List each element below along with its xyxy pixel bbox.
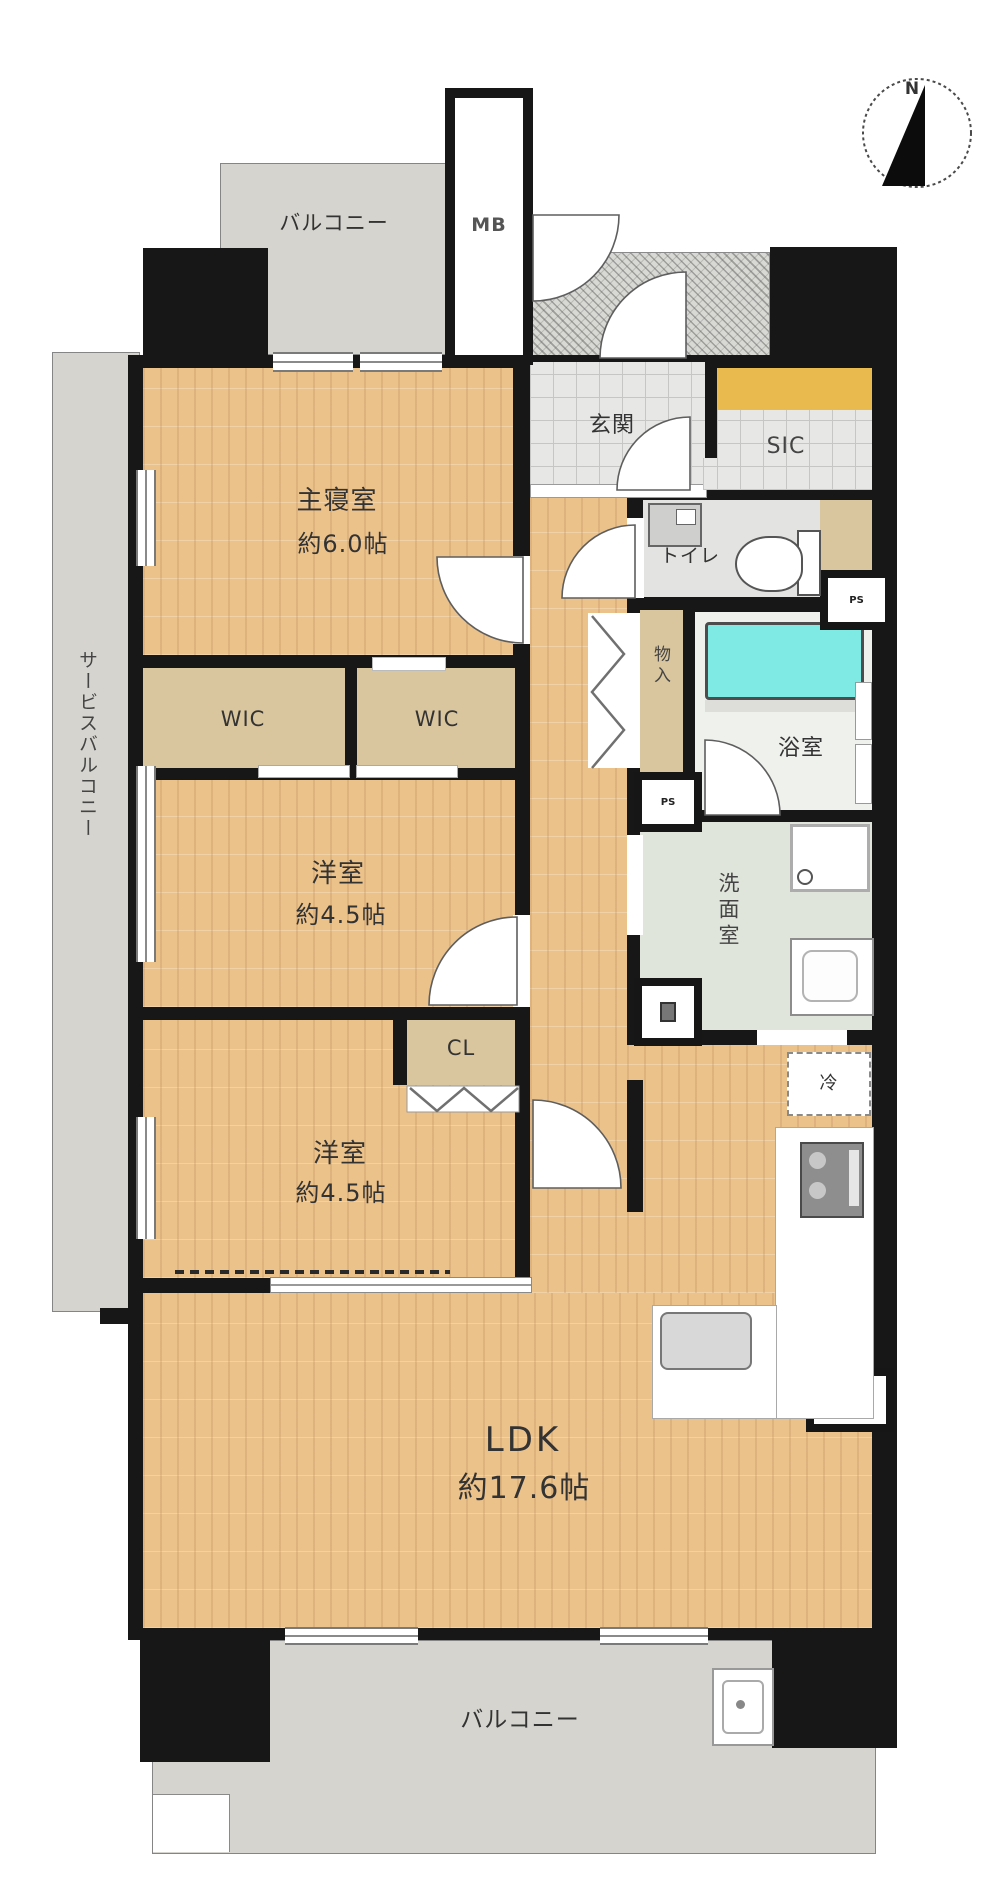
wic2-master-opening — [372, 657, 446, 671]
label-genkan: 玄関 — [542, 414, 682, 438]
service-balcony-label: サービスバルコニー — [74, 650, 101, 839]
refrigerator: 冷 — [787, 1052, 871, 1116]
label-master-name: 主寝室 — [237, 487, 437, 516]
label-western1-size: 約4.5帖 — [241, 902, 441, 928]
stove — [800, 1142, 864, 1218]
pillar-bottom-right — [772, 1632, 897, 1748]
meter-box-label: MB — [455, 215, 523, 236]
window-western1-left — [136, 766, 156, 962]
label-western2-name: 洋室 — [240, 1140, 440, 1169]
wall-corner-service-balcony — [100, 1308, 143, 1324]
label-wic-1: WIC — [193, 708, 293, 731]
sic-shelf — [717, 368, 872, 410]
burner-1 — [809, 1152, 826, 1169]
pillar-top-left — [143, 248, 268, 368]
balcony-bottom-notch — [153, 1794, 230, 1852]
toilet-hand-basin — [648, 503, 702, 547]
label-toilet: トイレ — [625, 546, 755, 567]
sliding-partition-track — [270, 1277, 532, 1293]
label-ldk-name: LDK — [398, 1422, 648, 1459]
vanity-basin — [790, 938, 874, 1016]
compass-icon: N — [863, 79, 971, 187]
grill — [849, 1150, 859, 1206]
window-master-top-2 — [360, 352, 442, 372]
label-washroom: 洗面室 — [713, 872, 743, 950]
balcony-bottom-label: バルコニー — [395, 1708, 645, 1733]
vanity-bowl — [802, 950, 858, 1002]
pipe-space-1: PS — [820, 570, 893, 630]
kitchen-sink — [660, 1312, 752, 1370]
opening-washroom-hall — [627, 835, 643, 935]
compass-north-label: N — [905, 79, 919, 99]
label-bathroom: 浴室 — [741, 737, 861, 761]
wic2-opening — [356, 765, 458, 778]
window-master-top-1 — [273, 352, 353, 372]
opening-storage-fold — [588, 613, 640, 768]
bathtub-ledge — [705, 700, 858, 712]
balcony-top-label: バルコニー — [234, 212, 434, 235]
cl-wall-stub — [393, 1017, 407, 1085]
label-western2-size: 約4.5帖 — [241, 1180, 441, 1206]
pillar-top-right — [770, 247, 897, 358]
label-cl: CL — [411, 1037, 511, 1060]
label-monoire: 物入 — [648, 645, 673, 687]
label-sic: SIC — [736, 435, 836, 459]
washer-pan — [790, 824, 870, 892]
meter-glyph — [660, 1002, 676, 1022]
storage-monoire — [640, 610, 683, 780]
label-ldk-size: 約17.6帖 — [399, 1472, 649, 1505]
pipe-space-2: PS — [634, 772, 702, 832]
bathtub — [705, 622, 864, 700]
label-master-size: 約6.0帖 — [243, 531, 443, 557]
window-ldk-bottom-2 — [600, 1627, 708, 1645]
balcony-slop-sink — [712, 1668, 774, 1746]
pipe-space-2-label: PS — [661, 797, 676, 808]
label-wic-2: WIC — [387, 708, 487, 731]
hand-basin-bowl — [676, 509, 696, 525]
sliding-partition-dashes — [175, 1270, 450, 1274]
bath-fixture-1 — [855, 682, 872, 740]
opening-washroom-kitchen — [757, 1030, 847, 1045]
room-western-1 — [143, 780, 515, 1007]
window-ldk-bottom-1 — [285, 1627, 418, 1645]
washer-drain — [797, 869, 813, 885]
window-master-left — [136, 470, 156, 566]
entrance-porch — [530, 252, 770, 359]
meter-box-small — [634, 978, 702, 1046]
window-western2-left — [136, 1117, 156, 1239]
pillar-bottom-left — [140, 1640, 270, 1762]
wic1-opening — [258, 765, 350, 778]
opening-master-door — [513, 556, 530, 644]
pipe-space-1-label: PS — [849, 595, 864, 606]
burner-2 — [809, 1182, 826, 1199]
slop-sink-drain — [736, 1700, 745, 1709]
floor-plan: バルコニー サービスバルコニー バルコニー — [0, 0, 1000, 1888]
toilet-cabinet — [820, 500, 872, 572]
opening-western1-door — [513, 915, 530, 1007]
genkan-step — [530, 484, 707, 498]
refrigerator-label: 冷 — [820, 1074, 839, 1094]
hall-ldk-wall-stub — [627, 1080, 643, 1212]
label-western1-name: 洋室 — [238, 860, 438, 889]
